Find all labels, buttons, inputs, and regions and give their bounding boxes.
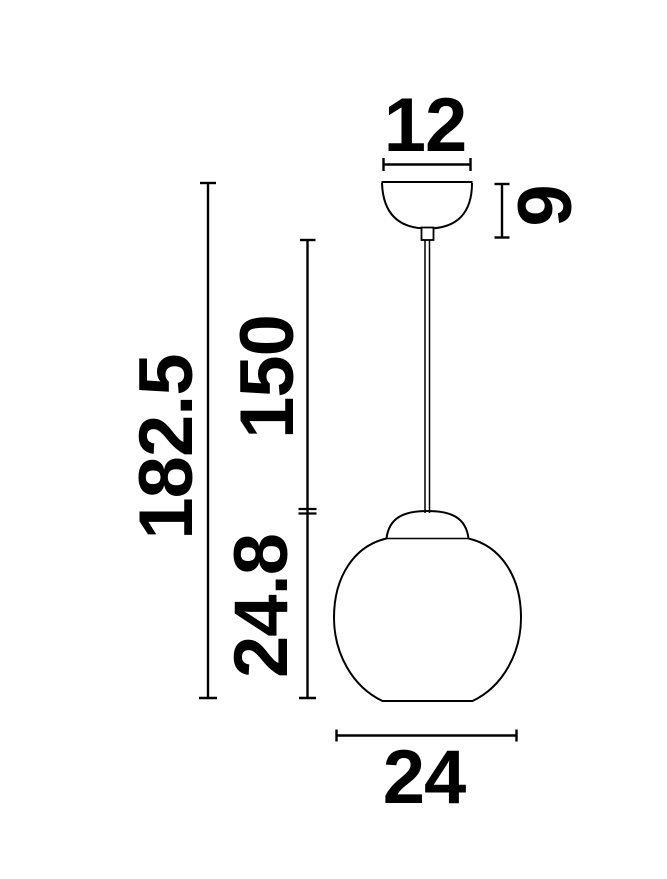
- canopy-outline: [382, 182, 473, 240]
- canopy-height-label: 9: [508, 185, 584, 226]
- shade-height-label: 24.8: [224, 534, 300, 678]
- globe-body: [334, 539, 521, 702]
- dimension-drawing: 12 9 182.5 150 24.8 24: [0, 0, 667, 879]
- canopy-connector: [422, 228, 434, 241]
- canopy-width-label: 12: [384, 88, 467, 164]
- total-height-label: 182.5: [129, 354, 205, 539]
- cord-length-label: 150: [230, 315, 306, 439]
- globe-outline: [334, 511, 521, 701]
- lamp-line-art: [0, 0, 667, 879]
- shade-width-label: 24: [383, 740, 466, 816]
- globe-top-cap: [387, 511, 469, 539]
- cord: [425, 240, 430, 513]
